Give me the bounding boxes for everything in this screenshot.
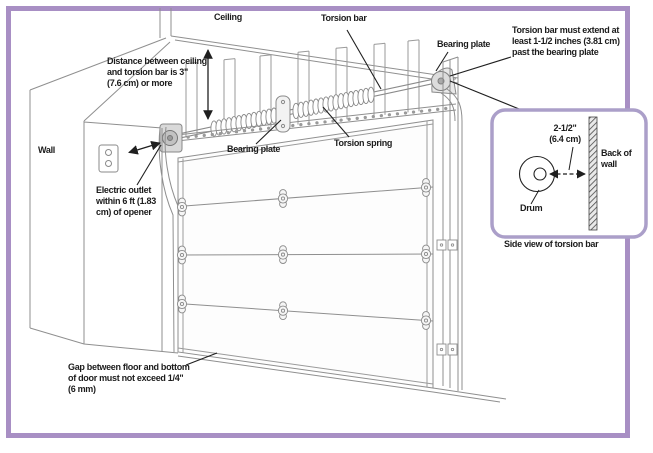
outlet-note-pointer [137,145,161,185]
garage-door-diagram: Ceiling Torsion bar Bearing plate Torsio… [0,0,653,453]
torsion-bar-extend-note: Torsion bar must extend at least 1-1/2 i… [512,25,630,58]
inset-caption: Side view of torsion bar [504,239,598,250]
left-track [159,127,178,352]
right-track [441,57,462,391]
torsion-bar-pointer [347,30,381,89]
torsion-spring-label: Torsion spring [334,138,392,149]
floor-gap-note: Gap between floor and bottom of door mus… [68,362,196,395]
torsion-bar-cross-section [534,168,546,180]
garage-door [177,120,457,388]
torsion-bar-label: Torsion bar [321,13,367,24]
right-bearing-plate [432,68,457,94]
bearing-plate-top-label: Bearing plate [437,39,490,50]
extend-note-pointer [450,57,511,76]
drum-label: Drum [520,203,542,214]
center-bearing-plate [276,96,290,132]
ceiling-distance-note: Distance between ceiling and torsion bar… [107,56,213,89]
track-brackets [437,240,457,355]
outlet-distance-arrow [129,143,160,153]
torsion-spring-right [293,87,374,118]
wall-label: Wall [38,145,55,156]
inset-link-pointer [450,81,529,113]
electric-outlet-note: Electric outlet within 6 ft (1.83 cm) of… [96,185,168,218]
electric-outlet [99,145,118,172]
left-bearing-plate [160,124,182,152]
back-of-wall-label: Back of wall [601,148,641,170]
ceiling-label: Ceiling [214,12,242,23]
back-of-wall-hatch [589,117,597,230]
inset-dimension-label: 2-1/2" (6.4 cm) [542,123,588,145]
bearing-plate-center-label: Bearing plate [227,144,280,155]
